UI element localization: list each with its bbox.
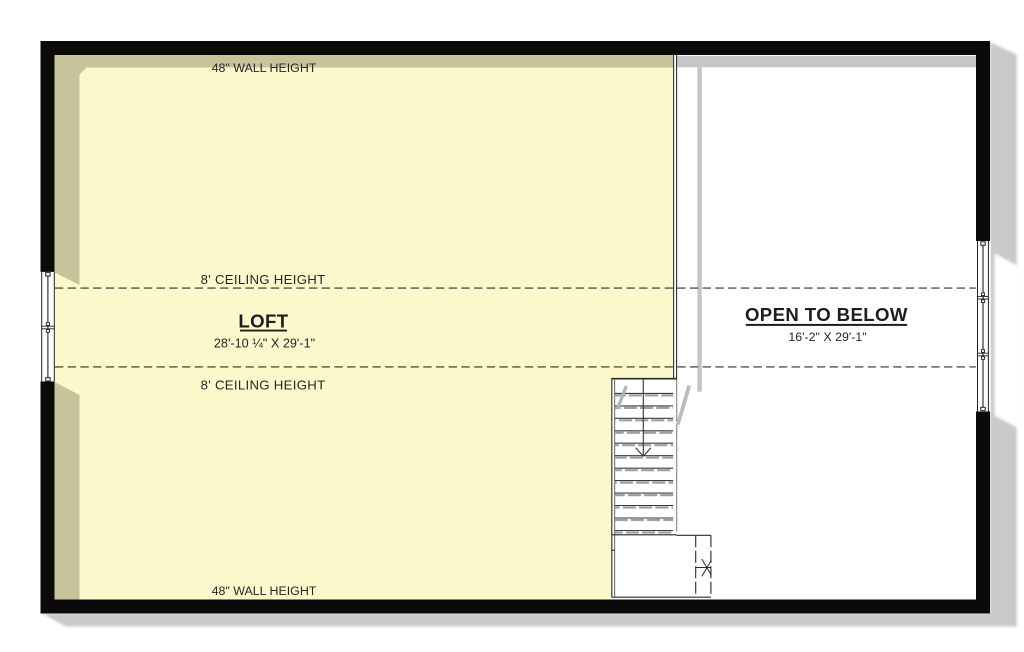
svg-text:48" WALL HEIGHT: 48" WALL HEIGHT: [212, 61, 317, 75]
svg-text:48" WALL HEIGHT: 48" WALL HEIGHT: [212, 584, 317, 598]
svg-text:28'-10 ¼" X 29'-1": 28'-10 ¼" X 29'-1": [214, 337, 315, 351]
svg-text:LOFT: LOFT: [238, 311, 288, 332]
svg-text:8' CEILING HEIGHT: 8' CEILING HEIGHT: [201, 272, 326, 287]
svg-text:OPEN TO BELOW: OPEN TO BELOW: [745, 304, 908, 325]
svg-text:8' CEILING HEIGHT: 8' CEILING HEIGHT: [201, 378, 326, 393]
svg-text:16'-2" X 29'-1": 16'-2" X 29'-1": [788, 330, 866, 344]
